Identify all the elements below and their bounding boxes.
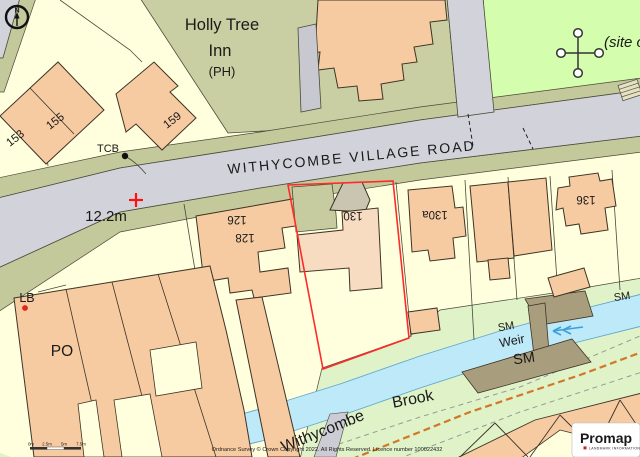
label-sm-east: SM [613,290,631,304]
label-spot-height: 12.2m [85,208,127,225]
building-east-2 [508,178,552,256]
label-lb: LB [19,291,34,305]
tcb-dot [122,153,128,159]
label-po: PO [51,343,73,360]
plot130-garden-green [292,184,337,232]
scale-t3: 7.5m [76,442,86,447]
label-inn-line1: Holly Tree [185,16,259,34]
label-inn-qualifier: (PH) [209,64,236,79]
scale-t2: 5m [61,442,67,447]
label-130: 130 [343,209,362,221]
promap-red-square-icon [584,446,587,449]
building-garden-store [408,308,440,334]
label-tcb: TCB [97,143,119,155]
lb-dot [22,305,28,311]
scale-t1: 2.5m [42,442,52,447]
promap-logo: Promap LANDMARK INFORMATION [572,423,640,457]
label-130a: 130a [422,208,448,220]
promap-brand: Promap [580,430,632,446]
label-inn-line2: Inn [209,42,232,60]
label-128: 128 [235,231,254,243]
label-sm-big: SM [512,350,536,369]
building-east-1 [470,182,514,262]
copyright-text: Ordnance Survey © Crown Copyright 2022. … [212,446,443,453]
label-126: 126 [227,213,246,225]
map-viewport[interactable]: N Holly Tree Inn (PH) WITHYCOMBE VILLAGE… [0,0,640,457]
label-site-annotation: (site o [604,34,640,51]
promap-tagline: LANDMARK INFORMATION [589,446,640,450]
building-east-small [488,258,510,280]
scale-t0: 0m [28,442,34,447]
map-canvas: N Holly Tree Inn (PH) WITHYCOMBE VILLAGE… [0,0,640,457]
label-136: 136 [576,193,595,205]
